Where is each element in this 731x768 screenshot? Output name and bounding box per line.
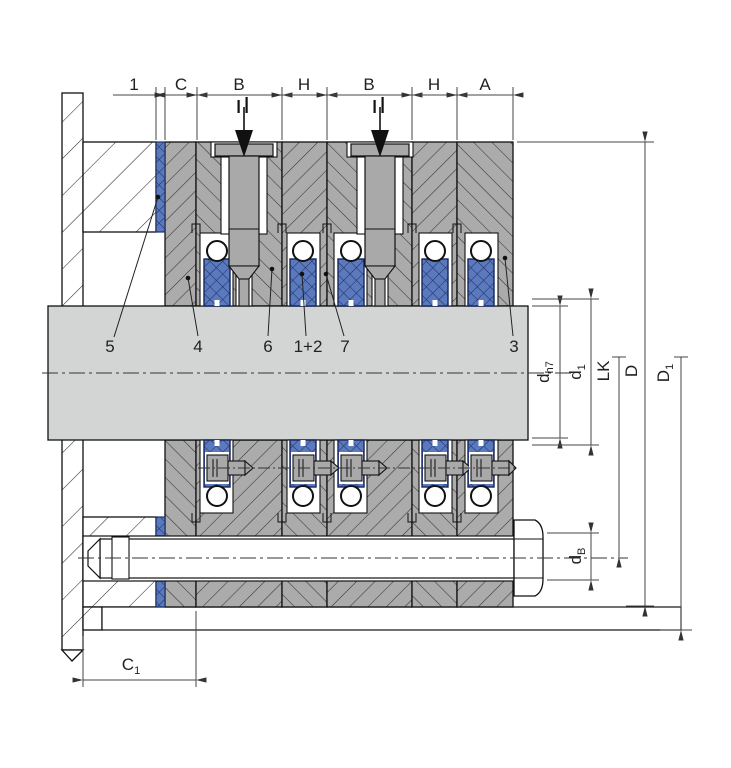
dimension-chain-top [113, 87, 513, 140]
dim-label-b2: B [363, 75, 374, 94]
dim-label-db: dB [566, 548, 588, 565]
dim-label-d1: d1 [566, 364, 588, 380]
dim-label-1: 1 [129, 75, 138, 94]
part-label-4: 4 [193, 337, 202, 356]
wall-tail [62, 650, 83, 661]
dim-label-c1: C1 [122, 655, 140, 677]
gland-ring-bottom [165, 440, 196, 607]
dim-label-b1: B [233, 75, 244, 94]
dimension-labels-right: dh7 d1 LK D D1 dB [534, 360, 676, 564]
plug-body [365, 156, 395, 266]
dim-label-d1-outer: D1 [654, 364, 676, 382]
part-label-1-2: 1+2 [294, 337, 323, 356]
gasket-bottom-a [156, 517, 165, 536]
dim-label-d: D [622, 365, 641, 377]
plug-stem [239, 279, 249, 306]
dim-label-dh7: dh7 [534, 361, 556, 383]
wall-step [83, 607, 102, 630]
gasket-bottom-b [156, 581, 165, 607]
dim-label-lk: LK [594, 360, 613, 381]
stuffing-box-section-drawing: 1 C B H B H A dh7 d1 LK D D1 dB C1 [0, 0, 731, 768]
plug-stem [375, 279, 385, 306]
gasket-top [156, 142, 165, 232]
dim-label-c: C [175, 75, 187, 94]
part-label-6: 6 [263, 337, 272, 356]
drawing-canvas: 1 C B H B H A dh7 d1 LK D D1 dB C1 [0, 0, 731, 768]
dim-label-a: A [479, 75, 491, 94]
gland-ring-4 [165, 142, 196, 306]
part-label-7: 7 [340, 337, 349, 356]
plug-body [229, 156, 259, 266]
flange-plate [102, 607, 681, 630]
dim-label-h2: H [428, 75, 440, 94]
dim-label-h1: H [298, 75, 310, 94]
part-label-5: 5 [105, 337, 114, 356]
wall-boss-top [83, 142, 156, 232]
dimension-labels-top: 1 C B H B H A [129, 75, 491, 94]
part-label-3: 3 [509, 337, 518, 356]
